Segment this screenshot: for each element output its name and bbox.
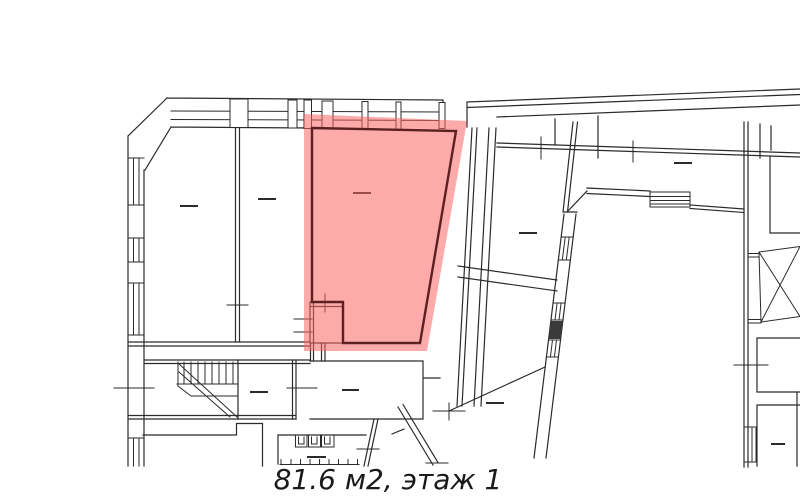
- room-dashes: [180, 163, 785, 457]
- lower-middle-room-walls: [310, 361, 440, 466]
- staircase-icon: [177, 362, 238, 417]
- toilet-room: [278, 435, 366, 465]
- stair-flight-icon: [748, 247, 800, 324]
- floorplan-drawing: 81.6 м2, этаж 1: [0, 0, 800, 497]
- floorplan-viewer: 81.6 м2, этаж 1: [0, 0, 800, 497]
- right-wall-window: [744, 427, 757, 462]
- left-wall-windows: [128, 158, 144, 466]
- wall-pier: [549, 321, 563, 339]
- toilet-fixture-icon: [322, 435, 335, 447]
- facade-pier: [288, 100, 297, 128]
- small-steps-icon: [650, 192, 690, 207]
- facade-pier: [230, 99, 248, 128]
- court-facade-wall: [534, 122, 578, 458]
- caption-area-floor: 81.6 м2, этаж 1: [274, 463, 503, 496]
- highlighted-room-fill: [304, 114, 467, 351]
- toilet-fixture-icon: [296, 435, 308, 447]
- toilet-fixture-icon: [309, 435, 321, 447]
